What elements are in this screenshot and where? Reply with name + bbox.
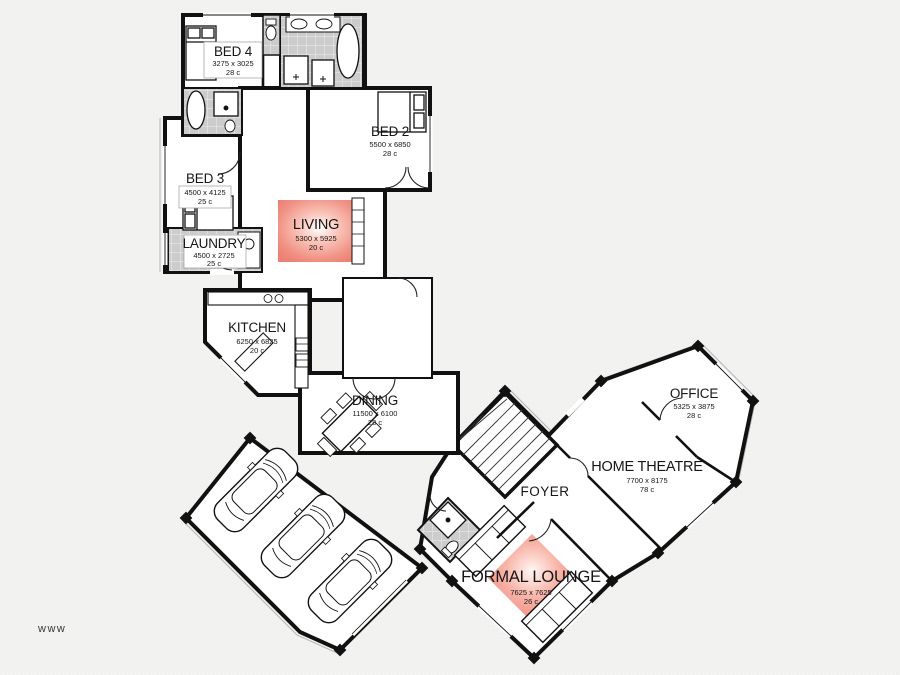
bed4-dims: 3275 x 3025 (212, 59, 253, 68)
shower (214, 92, 238, 116)
bed2-area: 28 c (383, 149, 397, 158)
home-theatre-name: HOME THEATRE (591, 459, 703, 475)
wall-unit (352, 198, 364, 264)
dining-dims: 11500 x 6100 (353, 409, 398, 418)
office-name: OFFICE (670, 386, 718, 401)
bed3-name: BED 3 (186, 171, 224, 186)
home-theatre-area: 78 c (640, 485, 654, 494)
formal-lounge-name: FORMAL LOUNGE (461, 568, 601, 586)
bed4-name: BED 4 (214, 44, 253, 59)
kitchen-name: KITCHEN (228, 320, 286, 335)
living-area: 20 c (309, 243, 323, 252)
floor-plan-drawing: BED 4 3275 x 3025 28 c BED 2 5500 x 6850… (0, 0, 900, 675)
kitchen-dims: 6250 x 6825 (236, 337, 277, 346)
bed2-dims: 5500 x 6850 (369, 140, 410, 149)
foyer-name: FOYER (520, 484, 569, 499)
laundry-area: 25 c (207, 259, 221, 268)
home-theatre-dims: 7700 x 8175 (626, 476, 667, 485)
bed3-area: 25 c (198, 197, 212, 206)
toilet (225, 120, 235, 132)
alfresco-court (343, 278, 432, 378)
dining-name: DINING (352, 393, 398, 408)
formal-lounge-dims: 7625 x 7625 (510, 588, 551, 597)
basin (316, 19, 332, 29)
office-dims: 5325 x 3875 (673, 402, 714, 411)
basin (291, 19, 307, 29)
living-dims: 5300 x 5925 (295, 234, 336, 243)
formal-lounge-area: 26 c (524, 597, 538, 606)
bed4-area: 28 c (226, 68, 240, 77)
watermark-text: www (37, 623, 66, 635)
floor-plan-page: BED 4 3275 x 3025 28 c BED 2 5500 x 6850… (0, 0, 900, 675)
room-label-foyer: FOYER (520, 484, 569, 499)
shower (284, 56, 308, 84)
bed2-name: BED 2 (371, 124, 409, 139)
dining-area: 28 c (368, 418, 382, 427)
office-area: 28 c (687, 411, 701, 420)
bed3-dims: 4500 x 4125 (184, 188, 225, 197)
shower (312, 60, 334, 86)
toilet (266, 19, 276, 40)
laundry-name: LAUNDRY (183, 236, 246, 251)
living-name: LIVING (293, 217, 339, 233)
kitchen-area: 20 c (250, 346, 264, 355)
bathtub (187, 91, 205, 129)
